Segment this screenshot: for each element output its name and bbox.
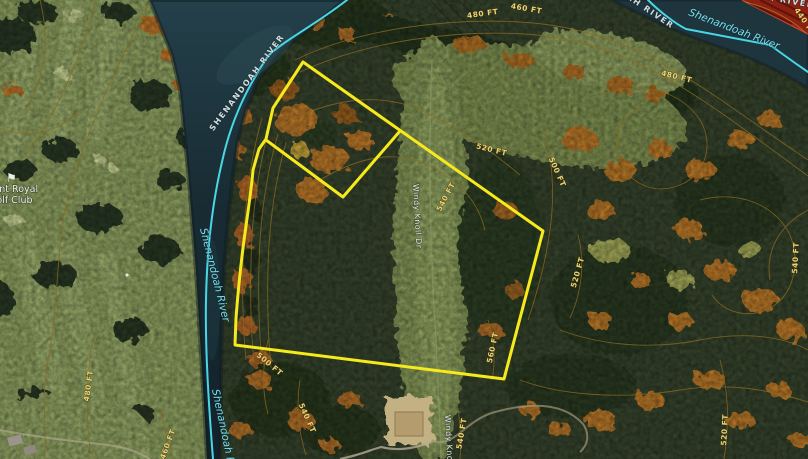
contour-label: 540 FT	[790, 242, 801, 274]
aerial-map-viewport[interactable]: 480 FT 460 FT 480 FT 440 FT 520 FT 500 F…	[0, 0, 808, 459]
golf-flag-icon: ⚑	[6, 171, 17, 185]
canopy-noise	[0, 0, 808, 459]
golf-club-name-line1: Front Royal	[0, 184, 38, 195]
aerial-map: 480 FT 460 FT 480 FT 440 FT 520 FT 500 F…	[0, 0, 808, 459]
contour-label: 520 FT	[719, 414, 730, 446]
golf-club-name-line2: Golf Club	[0, 195, 33, 206]
